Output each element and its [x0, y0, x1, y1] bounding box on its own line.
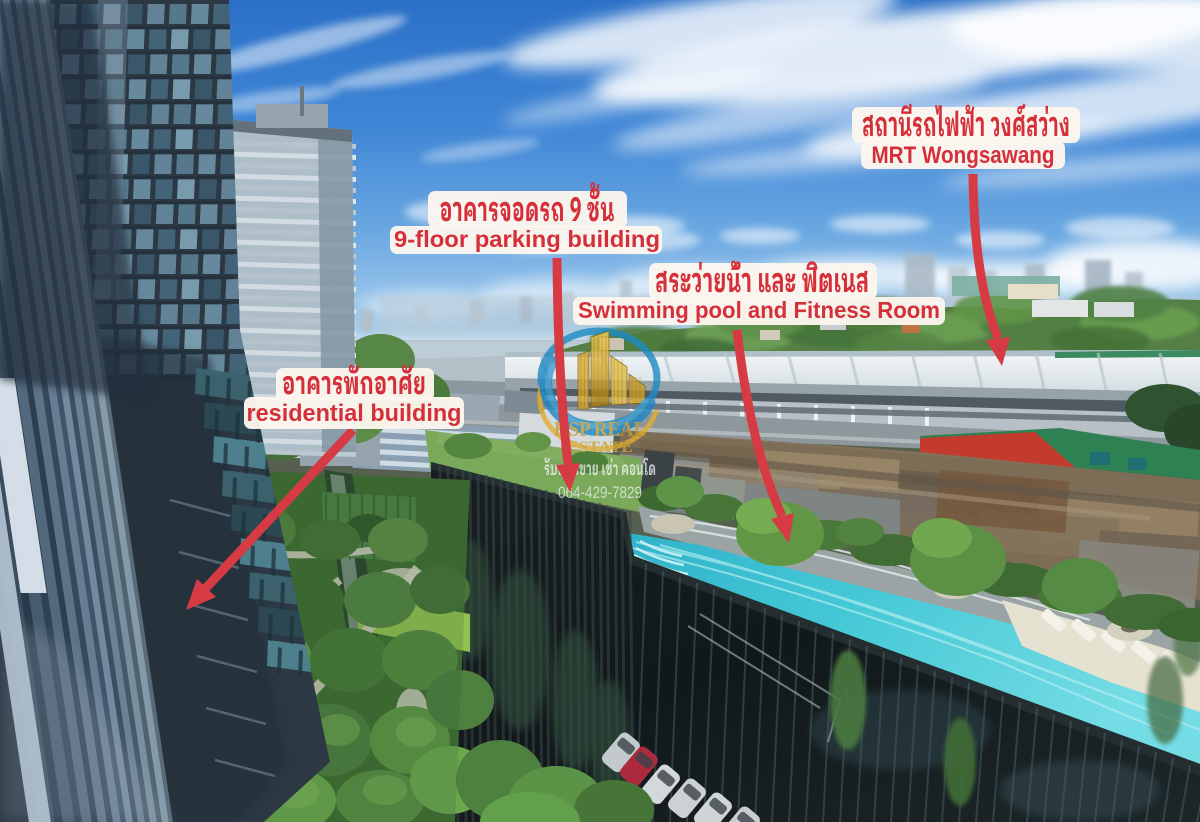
svg-text:ESTATE: ESTATE — [567, 439, 633, 456]
svg-text:residential building: residential building — [247, 400, 462, 427]
svg-text:9-floor parking building: 9-floor parking building — [394, 226, 660, 252]
svg-text:MRT Wongsawang: MRT Wongsawang — [872, 142, 1055, 169]
svg-text:Swimming pool and Fitness Room: Swimming pool and Fitness Room — [578, 297, 940, 323]
